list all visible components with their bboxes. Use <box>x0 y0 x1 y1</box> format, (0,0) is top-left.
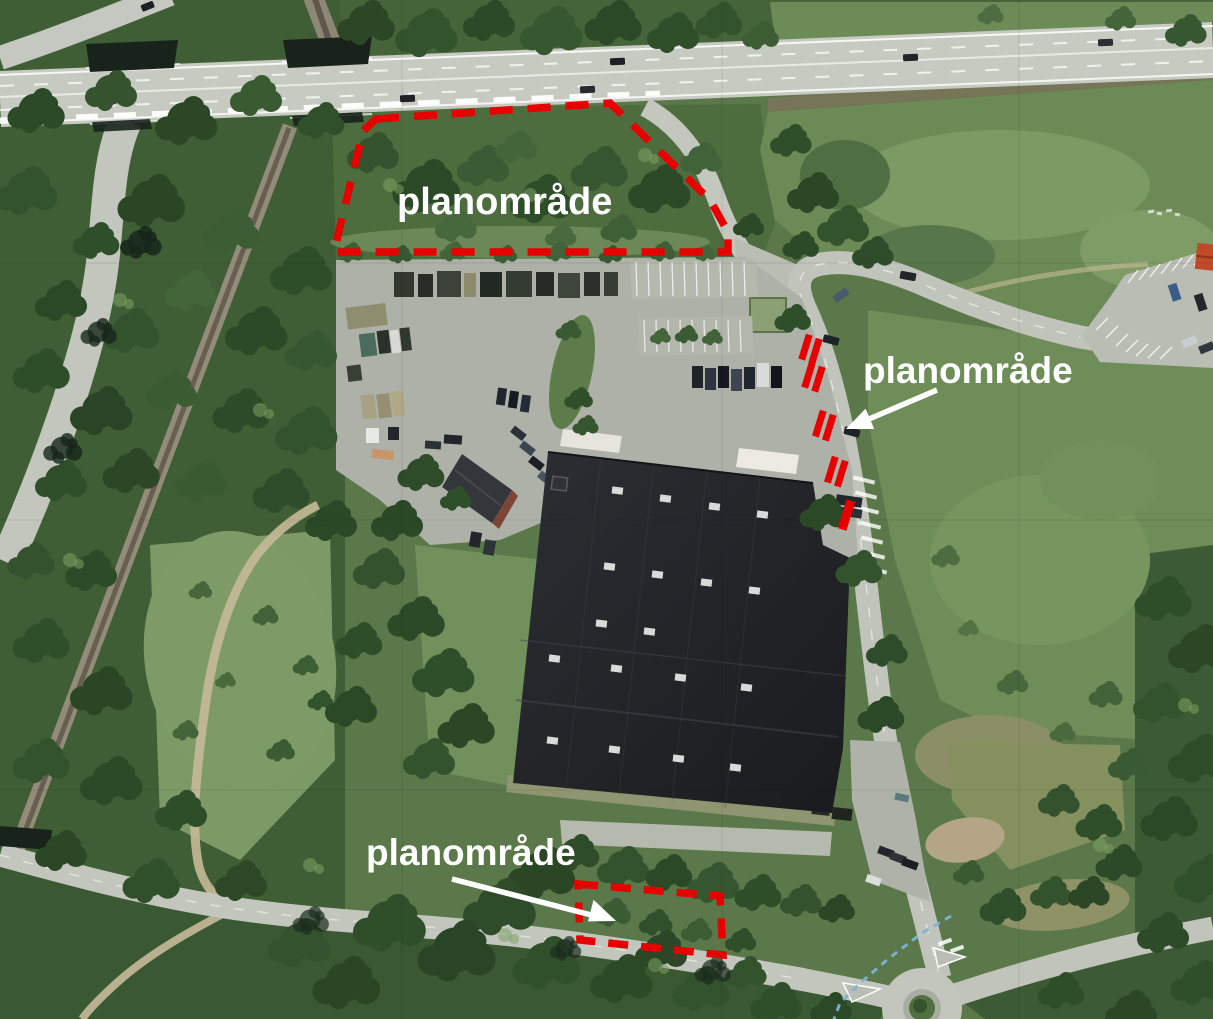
red-roof-building <box>1195 243 1213 271</box>
aerial-photo-canvas <box>0 0 1213 1019</box>
aerial-map: planområde planområde planområde <box>0 0 1213 1019</box>
region-label-planomrade-top: planområde <box>397 183 612 221</box>
region-label-planomrade-bottom: planområde <box>366 834 576 871</box>
warehouse-building <box>513 429 850 813</box>
region-label-planomrade-right: planområde <box>863 352 1073 389</box>
